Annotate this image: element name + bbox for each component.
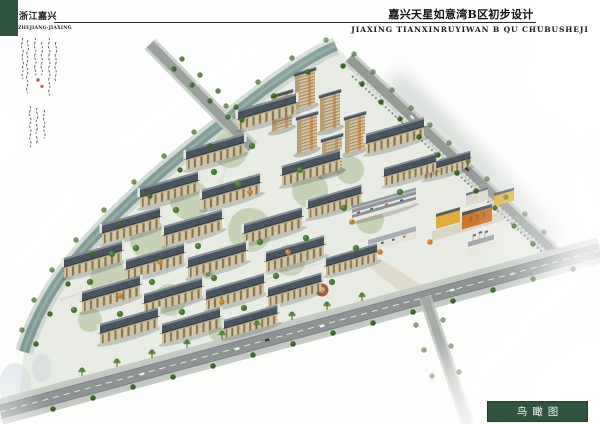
view-caption-label: 鸟瞰图: [512, 404, 564, 419]
branch-road: [425, 297, 468, 424]
project-title-cn: 嘉兴天星如意湾B区初步设计: [388, 6, 534, 22]
calligraphy-annotation: [8, 34, 70, 154]
seal-stamp: [40, 85, 43, 88]
header-rule: [54, 22, 536, 23]
corner-logo-block: [0, 0, 18, 36]
seal-stamps: [36, 78, 43, 88]
view-caption-box: 鸟瞰图: [487, 401, 588, 422]
presentation-board: 浙江嘉兴 ZHEJIANG·JIAXING 嘉兴天星如意湾B区初步设计 JIAX…: [0, 0, 600, 424]
aerial-rendering: [0, 0, 600, 424]
project-title-en: JIAXING TIANXINRUYIWAN B QU CHUBUSHEJI: [350, 25, 590, 34]
seal-stamp: [36, 78, 39, 81]
region-title-en: ZHEJIANG·JIAXING: [18, 26, 72, 31]
region-title-cn: 浙江嘉兴: [19, 9, 57, 22]
